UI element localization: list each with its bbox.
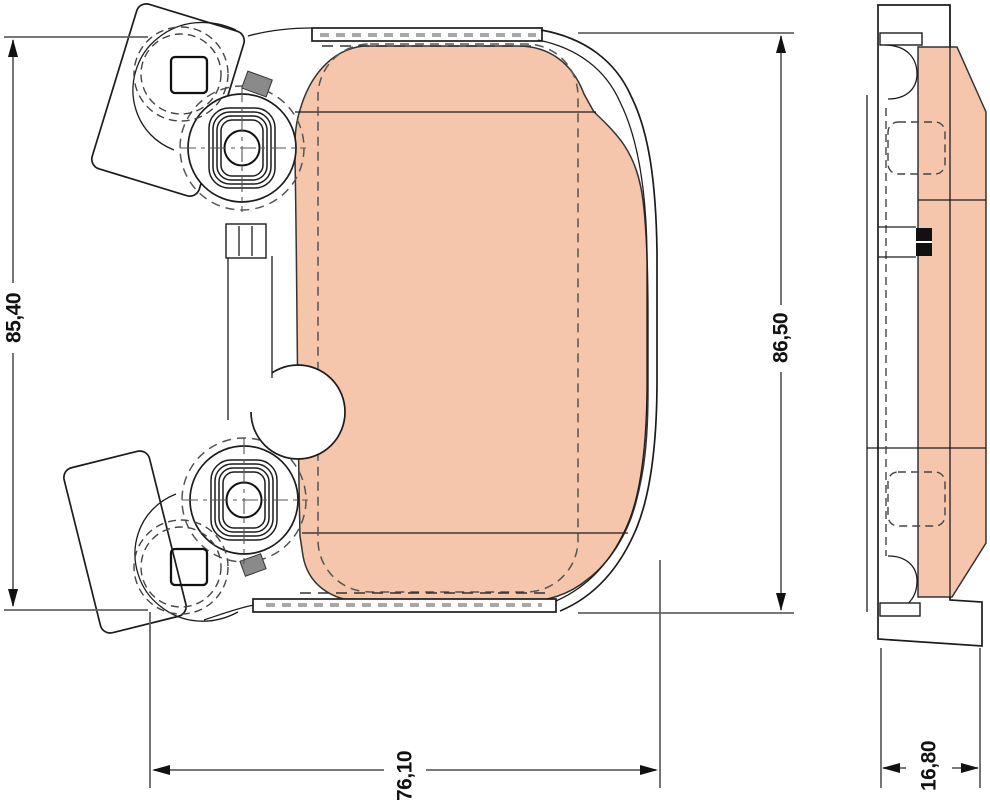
dimension-label-pad-height: 86,50 — [770, 313, 793, 363]
mounting-tab-bottom — [62, 449, 189, 635]
friction-surface — [295, 46, 648, 602]
backplate-edge-bottom-left — [204, 605, 254, 620]
side-friction — [918, 47, 986, 597]
clip-bottom — [240, 554, 266, 577]
side-clip-bottom — [880, 603, 920, 616]
side-view — [867, 5, 986, 646]
clip-top — [242, 71, 273, 97]
front-view — [62, 1, 657, 635]
dimension-label-left-height: 85,40 — [3, 293, 26, 343]
backplate-edge-top-left — [248, 28, 312, 36]
brake-pad-drawing: 85,40 86,50 76,10 16,80 — [0, 0, 990, 800]
dimension-label-pad-thickness: 16,80 — [918, 741, 941, 791]
dimension-label-pad-width: 76,10 — [394, 751, 417, 800]
dimension-16-80: 16,80 — [881, 648, 980, 791]
drawing-canvas: 85,40 86,50 76,10 16,80 — [0, 0, 990, 800]
retainer-block — [226, 224, 266, 258]
side-clip-top — [880, 33, 922, 45]
center-bar — [228, 252, 272, 412]
